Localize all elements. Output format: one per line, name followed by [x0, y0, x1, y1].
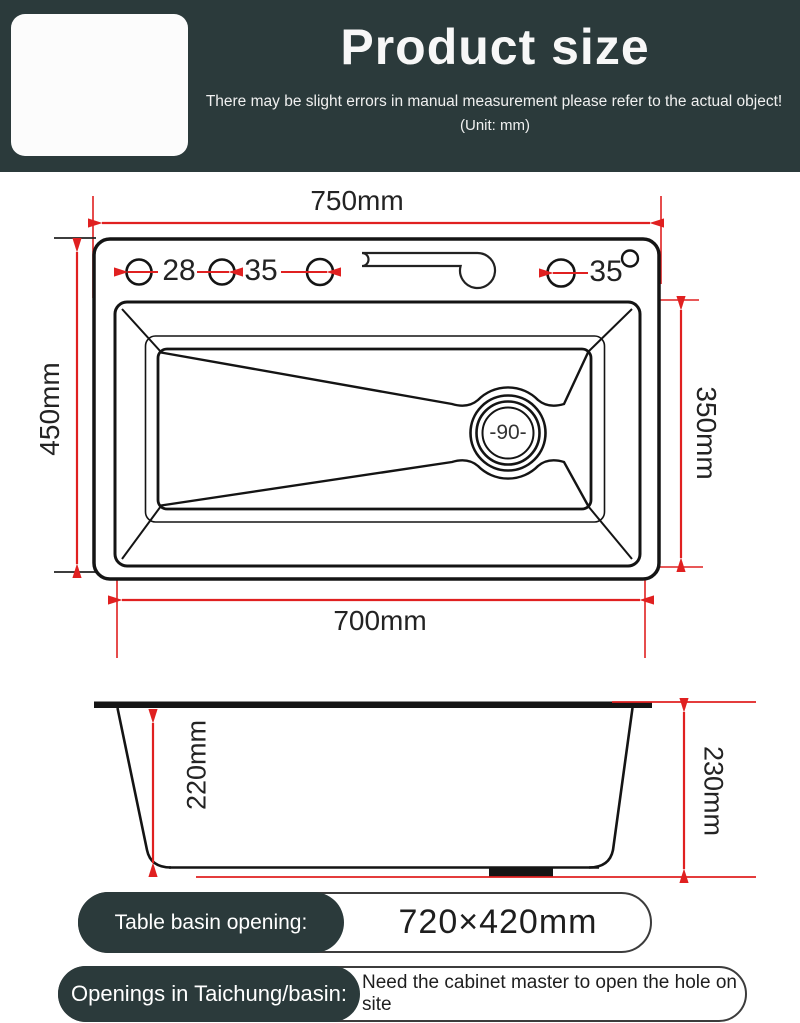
sink-dimension-drawing	[0, 0, 800, 1023]
product-size-infographic: Product size There may be slight errors …	[0, 0, 800, 1023]
dim-230-label: 230mm	[698, 746, 729, 836]
table-basin-opening-row: Table basin opening: 720×420mm	[78, 892, 652, 953]
hole-35a-label: 35	[244, 254, 277, 288]
hole-28-label: 28	[162, 254, 195, 288]
side-left-wall	[118, 708, 172, 868]
side-right-wall	[589, 708, 633, 868]
dim-750-label: 750mm	[310, 185, 403, 217]
table-basin-opening-label: Table basin opening:	[78, 892, 344, 953]
drain-90-label: -90-	[489, 421, 526, 445]
dim-220-label: 220mm	[182, 720, 213, 810]
cabinet-opening-label: Openings in Taichung/basin:	[58, 966, 360, 1022]
dim-350-label: 350mm	[690, 386, 722, 479]
counter-rim-bar	[94, 702, 652, 709]
cabinet-opening-value: Need the cabinet master to open the hole…	[362, 968, 745, 1020]
cabinet-opening-row: Openings in Taichung/basin: Need the cab…	[58, 966, 747, 1022]
dim-700-label: 700mm	[333, 605, 426, 637]
hole-35b-label: 35	[589, 255, 622, 289]
sink-outer-outline	[94, 239, 659, 579]
table-basin-opening-value: 720×420mm	[346, 894, 650, 951]
drain-stub	[489, 867, 553, 877]
dim-450-label: 450mm	[34, 362, 66, 455]
